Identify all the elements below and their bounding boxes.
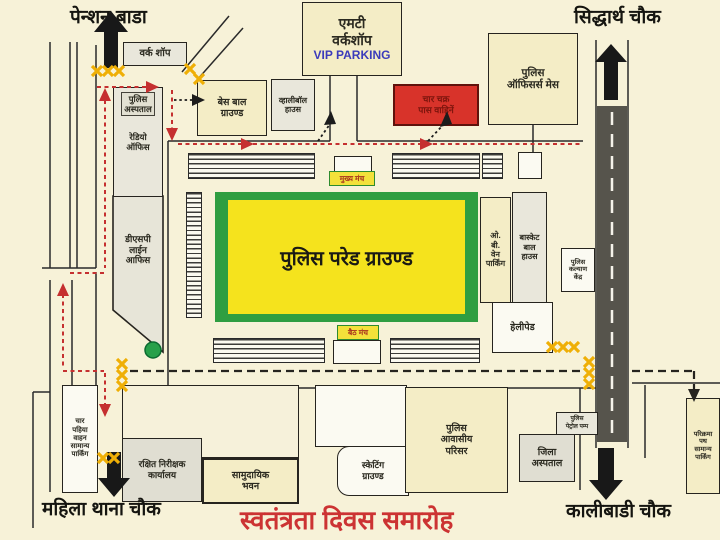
unlabeled-block-above-skating [315, 385, 407, 447]
main-stage-label: मुख्य मंच [329, 171, 375, 186]
heading-pension-bada: पेन्शन बाडा [70, 3, 147, 29]
building-basketball-house: बास्केट बाल हाउस [512, 192, 547, 303]
building-district-hospital: जिला अस्पताल [519, 434, 575, 482]
mt-workshop-line1: एमटी [339, 15, 366, 32]
building-reserve-inspector-office: रक्षित निरीक्षक कार्यालय [122, 438, 202, 502]
rear-stage-structure [333, 340, 381, 364]
heading-mahila-thana-chowk: महिला थाना चौक [42, 495, 161, 521]
building-parikrama-parking: परिक्रमा पथ सामान्य पार्किंग [686, 398, 720, 494]
radio-office-label: रेडियो ऑफिस [126, 132, 149, 152]
building-volleyball-house: व्हालीबॉल हाउस [271, 79, 315, 131]
heading-siddharth-chowk: सिद्धार्थ चौक [574, 3, 661, 29]
map-title: स्वतंत्रता दिवस समारोह [240, 501, 453, 537]
building-community-building: सामुदायिक भवन [202, 458, 299, 504]
stand-bottom-left [213, 338, 325, 363]
mt-workshop-line2: वर्कशॉप [332, 32, 372, 49]
rear-stage-label: बैठ मंच [337, 325, 379, 340]
building-police-residential: पुलिस आवासीय परिसर [405, 387, 508, 493]
police-parade-ground: पुलिस परेड ग्राउण्ड [215, 192, 478, 322]
police-hospital-label: पुलिस अस्पताल [121, 92, 154, 116]
stand-top-right [392, 153, 480, 179]
parade-ground-label: पुलिस परेड ग्राउण्ड [228, 200, 465, 314]
event-map: पेन्शन बाडा सिद्धार्थ चौक महिला थाना चौक… [0, 0, 720, 540]
small-outbuilding [518, 152, 542, 179]
stand-top-left [188, 153, 315, 179]
building-police-hospital-radio-office: पुलिस अस्पताल रेडियो ऑफिस [113, 87, 163, 197]
building-work-shop: वर्क शॉप [123, 42, 187, 66]
building-police-officers-mess: पुलिस ऑफिसर्स मेस [488, 33, 578, 125]
dsp-line-office-label: डीएसपी लाईन आफिस [115, 222, 161, 278]
stand-top-far-right [482, 153, 503, 179]
stand-bottom-right [390, 338, 480, 363]
stand-left-vertical [186, 192, 202, 318]
building-general-parking-left: चार पहिया वाहन सामान्य पार्किंग [62, 385, 98, 493]
building-skating-ground: स्केटिंग ग्राउण्ड [337, 446, 409, 496]
building-pass-vehicles-red-zone: चार चक्र पास वाहिनें [393, 84, 479, 126]
heading-kalibadi-chowk: कालीबाडी चौक [566, 497, 671, 523]
building-helipad: हेलीपेड [492, 302, 553, 353]
building-police-petrol-pump: पुलिस पेट्रोल पम्प [556, 412, 598, 435]
building-police-welfare-centre: पुलिस कल्याण केंद्र [561, 248, 595, 292]
vip-parking-label: VIP PARKING [314, 48, 391, 62]
building-ob-van-parking: ओ. बी. वेन पार्किंग [480, 197, 511, 303]
building-baseball-ground: बेस बाल ग्राउण्ड [197, 80, 267, 136]
building-mt-workshop-vip-parking: एमटी वर्कशॉप VIP PARKING [302, 2, 402, 76]
